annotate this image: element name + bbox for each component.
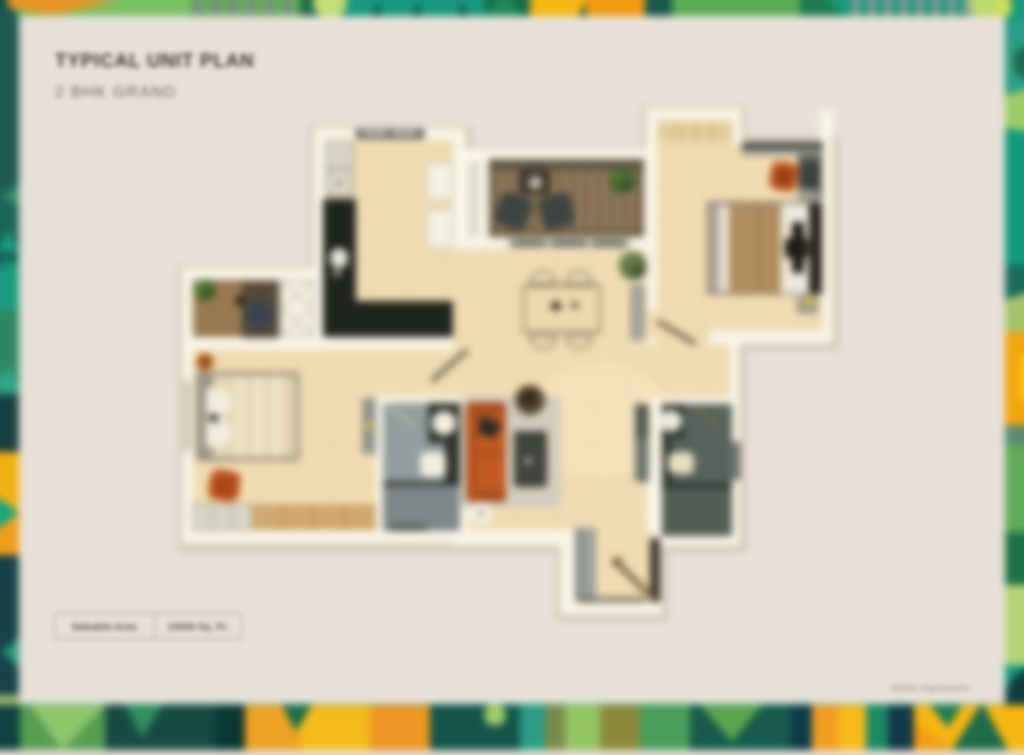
svg-text:2 BHK GRAND: 2 BHK GRAND xyxy=(55,84,177,101)
svg-text:10000 Sq. Ft.: 10000 Sq. Ft. xyxy=(167,622,228,633)
svg-text:Artistic Impressions: Artistic Impressions xyxy=(891,683,970,693)
svg-text:TYPICAL UNIT PLAN: TYPICAL UNIT PLAN xyxy=(55,51,254,72)
svg-text:Saleable Area: Saleable Area xyxy=(71,622,137,633)
